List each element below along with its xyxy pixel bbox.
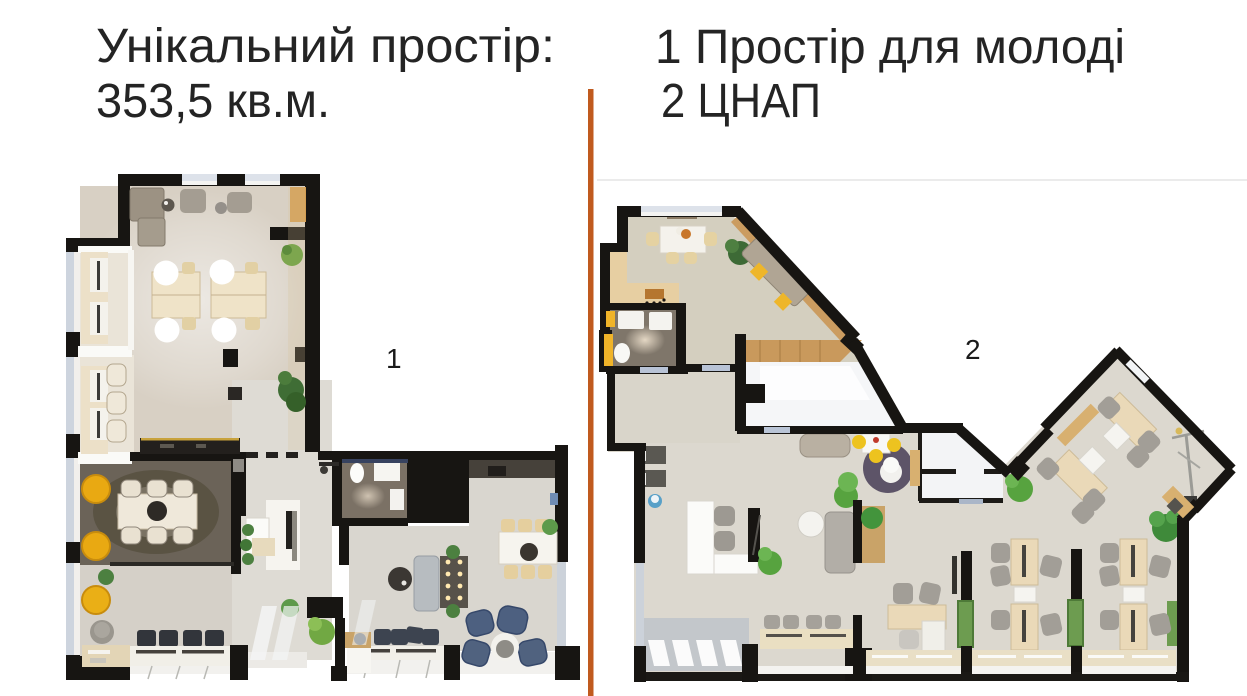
svg-text:2: 2 [965, 334, 981, 365]
svg-text:2 ЦНАП: 2 ЦНАП [661, 75, 821, 128]
svg-text:1: 1 [386, 343, 402, 374]
svg-text:Унікальний простір:: Унікальний простір: [96, 20, 555, 73]
svg-text:353,5 кв.м.: 353,5 кв.м. [96, 75, 330, 128]
svg-text:1 Простір для молоді: 1 Простір для молоді [655, 21, 1125, 74]
